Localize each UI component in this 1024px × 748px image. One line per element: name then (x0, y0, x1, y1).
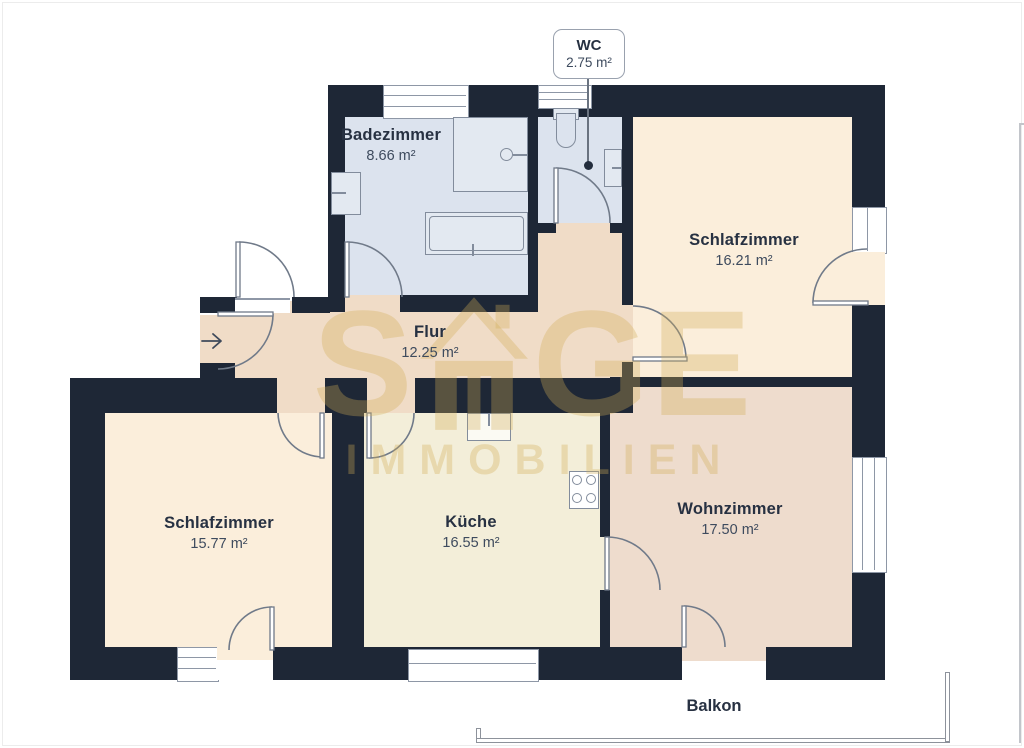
bathtub-tap-icon (472, 244, 474, 256)
wall-segment (70, 378, 633, 413)
badezimmer-door-opening (345, 295, 400, 312)
exterior-door-gap (217, 660, 273, 680)
wall-segment (600, 387, 610, 647)
schlafzimmer-top-window (852, 207, 887, 254)
room-name: Flur (401, 323, 458, 342)
balkon-label: Balkon (686, 697, 741, 716)
room-name: WC (577, 37, 602, 54)
wall-segment (200, 297, 237, 313)
room-area: 16.55 m² (442, 535, 499, 551)
bathroom-sink-line (331, 192, 346, 194)
wall-segment (600, 378, 633, 413)
stairwell-door-threshold (235, 298, 290, 300)
room-area: 16.21 m² (689, 253, 799, 269)
wohnzimmer-label: Wohnzimmer 17.50 m² (677, 500, 782, 538)
room-name: Schlafzimmer (689, 231, 799, 250)
room-area: 12.25 m² (401, 345, 458, 361)
stairwell-door (236, 242, 294, 297)
badezimmer-label: Badezimmer 8.66 m² (341, 126, 441, 164)
shower-line (513, 154, 528, 156)
window-glazing-line (178, 657, 216, 658)
window-glazing-line (409, 663, 536, 664)
window-glazing-line (539, 99, 589, 100)
schlafzimmer-bottom-window (177, 647, 219, 682)
wall-segment (332, 413, 364, 650)
wall-segment (622, 362, 633, 378)
stove-burner-icon (586, 475, 596, 485)
wall-segment (292, 297, 330, 313)
floor-plan: S GE IMMOBILIEN Badezimmer 8.66 m² Schla… (0, 0, 1024, 748)
neighbor-outline-horizontal (1019, 123, 1024, 125)
shower-drain-icon (500, 148, 513, 161)
kueche-door-opening (367, 378, 415, 413)
entrance-arrow-icon (198, 330, 228, 352)
schlafzimmer-top-door-opening (622, 305, 633, 362)
room-area: 2.75 m² (566, 55, 612, 71)
stairwell-door-opening (235, 300, 290, 313)
wc-window (538, 85, 592, 109)
balcony-rail-right (945, 672, 950, 742)
kueche-label: Küche 16.55 m² (442, 513, 499, 551)
kueche-window (408, 649, 539, 682)
schlafzimmer-top-label: Schlafzimmer 16.21 m² (689, 231, 799, 269)
wall-segment (610, 377, 852, 387)
wall-segment (852, 85, 885, 680)
room-area: 8.66 m² (341, 148, 441, 164)
balcony-door-side-panel (729, 647, 766, 661)
wc-door-opening (556, 223, 610, 233)
window-glazing-line (874, 458, 875, 570)
kitchen-sink-tap-icon (488, 413, 490, 426)
flur-wc-passage-floor (538, 233, 622, 303)
bathtub-inner (429, 216, 524, 251)
balcony-rail-left (476, 728, 481, 739)
stove-burner-icon (586, 493, 596, 503)
schlafzimmer-top-balcony-door-opening (852, 252, 885, 305)
wohnzimmer-window (852, 457, 887, 573)
room-area: 17.50 m² (677, 522, 782, 538)
stove-burner-icon (572, 493, 582, 503)
room-name: Wohnzimmer (677, 500, 782, 519)
window-glazing-line (862, 458, 863, 570)
window-glazing-line (178, 668, 216, 669)
toilet-bowl-icon (556, 113, 576, 148)
wc-callout: WC 2.75 m² (553, 29, 625, 79)
balcony-door-gap (682, 661, 729, 680)
wohnzimmer-balcony-door-opening (682, 647, 729, 661)
window-glazing-line (867, 208, 868, 251)
kueche-wohnzimmer-door-opening (600, 537, 610, 590)
room-name: Schlafzimmer (164, 514, 274, 533)
wc-callout-dot (584, 161, 593, 170)
schlafzimmer-bottom-exterior-door-opening (217, 647, 273, 660)
wall-segment (70, 378, 105, 680)
bathroom-sink-icon (331, 172, 361, 215)
balcony-rail-bottom (476, 738, 950, 743)
neighbor-outline-vertical (1019, 123, 1021, 743)
window-glazing-line (384, 95, 466, 96)
stove-burner-icon (572, 475, 582, 485)
flur-label: Flur 12.25 m² (401, 323, 458, 361)
balcony-door-side-gap (729, 661, 766, 680)
window-glazing-line (539, 92, 589, 93)
room-area: 15.77 m² (164, 536, 274, 552)
schlafzimmer-bottom-label: Schlafzimmer 15.77 m² (164, 514, 274, 552)
window-glazing-line (384, 106, 466, 107)
wc-callout-leader-line (587, 77, 589, 163)
wall-segment (622, 107, 633, 305)
wc-sink-line (612, 167, 622, 169)
room-name: Badezimmer (341, 126, 441, 145)
wall-segment (528, 117, 538, 312)
schlafzimmer-bottom-door-opening (277, 378, 325, 413)
room-name: Küche (442, 513, 499, 532)
badezimmer-window (383, 85, 469, 119)
